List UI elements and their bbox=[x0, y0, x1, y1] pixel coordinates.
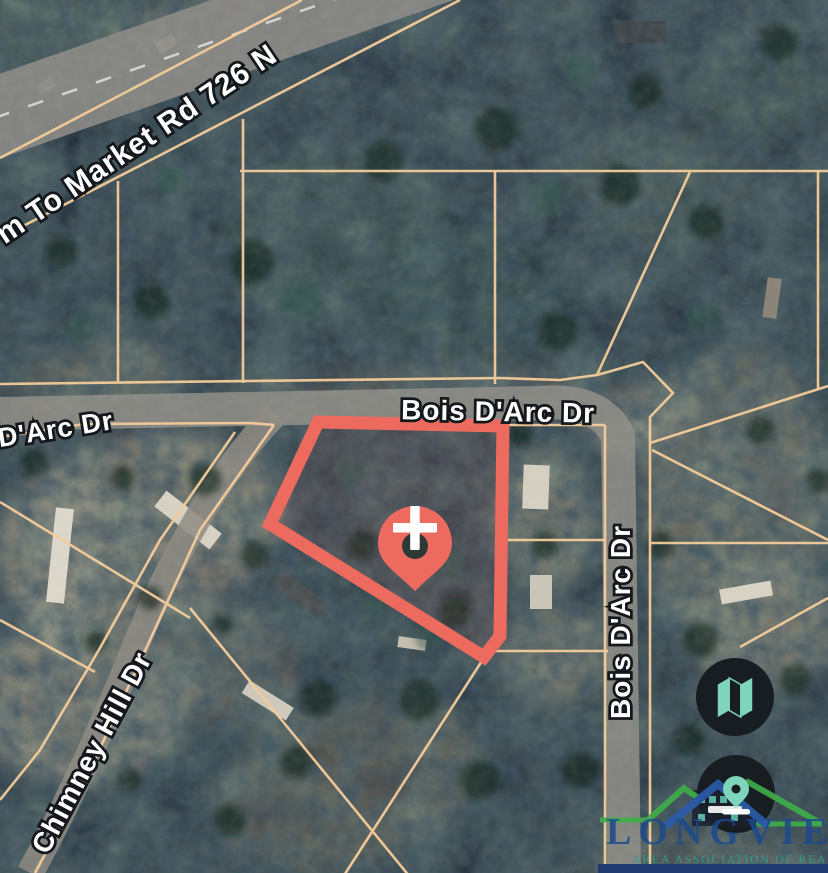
map-layers-button[interactable] bbox=[696, 658, 774, 736]
location-pin-icon bbox=[711, 769, 761, 819]
drop-pin-button[interactable] bbox=[697, 755, 775, 833]
satellite-map-view: m To Market Rd 726 N D'Arc Dr Bois D'Arc… bbox=[0, 0, 828, 873]
road-label-bois-darc-horizontal: Bois D'Arc Dr bbox=[401, 394, 595, 428]
road-label-bois-darc-vertical: Bois D'Arc Dr bbox=[605, 525, 636, 719]
folded-map-icon bbox=[712, 674, 758, 720]
watermark-bottom-bar bbox=[598, 864, 828, 873]
map-canvas[interactable]: m To Market Rd 726 N D'Arc Dr Bois D'Arc… bbox=[0, 0, 828, 873]
